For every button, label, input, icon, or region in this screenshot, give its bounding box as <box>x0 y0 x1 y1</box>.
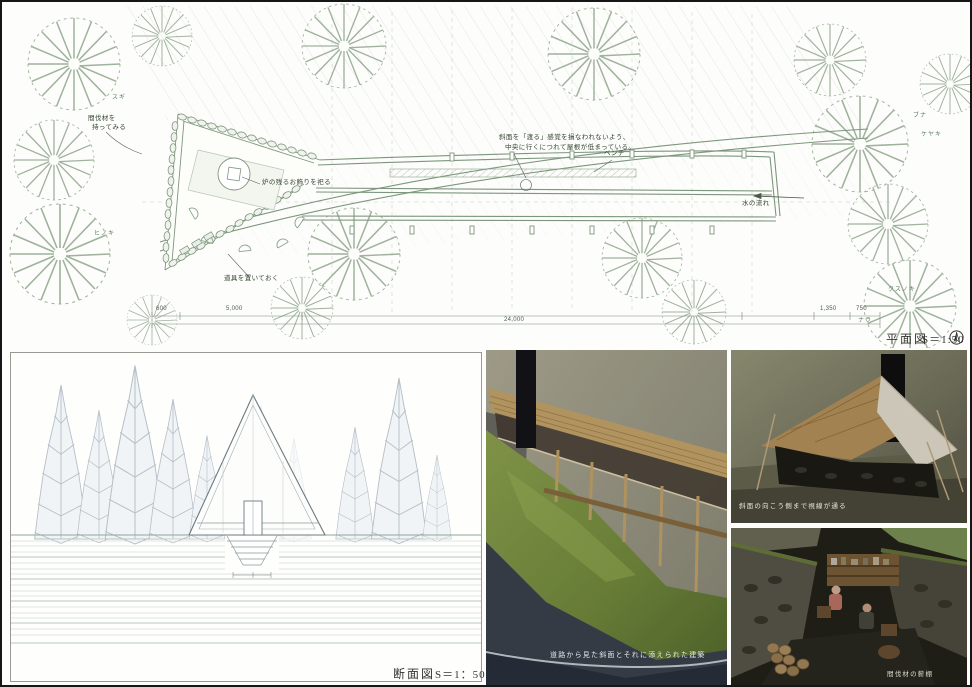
bench-label: ベンチ <box>604 149 625 158</box>
tree-label-buna: ブナ <box>913 110 927 119</box>
tree-label-keyaki: ケヤキ <box>921 129 942 138</box>
tree-label-nara: ナラ <box>858 315 872 324</box>
hearth-circle <box>218 158 250 190</box>
sightline-caption: 斜面の向こう側まで視線が通る <box>739 500 847 510</box>
model-photo-interior: 間伐材の薪棚 <box>731 528 967 685</box>
tree-label-kusunoki: クスノキ <box>888 284 916 293</box>
dim-24000: 24,000 <box>504 317 524 323</box>
entry-stairs <box>225 536 279 578</box>
thinned-wood-label-line1: 間伐材を <box>88 114 116 123</box>
water-flow-label: 水の流れ <box>742 199 770 208</box>
tree-label-hinoki: ヒノキ <box>94 228 115 237</box>
model-photo-road-view: 道路から見た斜面とそれに添えられた建築 <box>486 350 727 685</box>
presentation-board: 斜面を「渡る」感覚を損なわれないよう、 中央に行くにつれて屋根が低まっている。 … <box>0 0 972 687</box>
tree-label-sugi: スギ <box>112 92 126 101</box>
section-drawing-panel: 断面図 S＝1：50 <box>10 352 482 682</box>
site-plan-drawing <box>2 2 970 348</box>
thinned-wood-label-line2: 持ってみる <box>92 123 126 132</box>
section-scale: S＝1：50 <box>435 666 486 682</box>
north-arrow-icon <box>949 330 964 345</box>
dim-750: 750 <box>856 306 867 312</box>
section-title: 断面図 <box>393 665 435 682</box>
roof-annotation-line1: 斜面を「渡る」感覚を損なわれないよう、 <box>499 133 630 142</box>
dim-5000: 5,000 <box>226 306 243 312</box>
model-photo-sightline: 斜面の向こう側まで視線が通る <box>731 350 967 523</box>
hearth-label: 炉の残るお飾りを祀る <box>262 178 331 187</box>
dim-1350: 1,350 <box>820 306 837 312</box>
tools-label: 道具を置いておく <box>224 274 279 283</box>
dim-600: 600 <box>156 306 167 312</box>
road-view-caption: 道路から見た斜面とそれに添えられた建築 <box>550 650 706 660</box>
section-drawing <box>11 353 481 681</box>
bench-strip <box>390 169 636 177</box>
woodshelf-caption: 間伐材の薪棚 <box>887 668 933 678</box>
